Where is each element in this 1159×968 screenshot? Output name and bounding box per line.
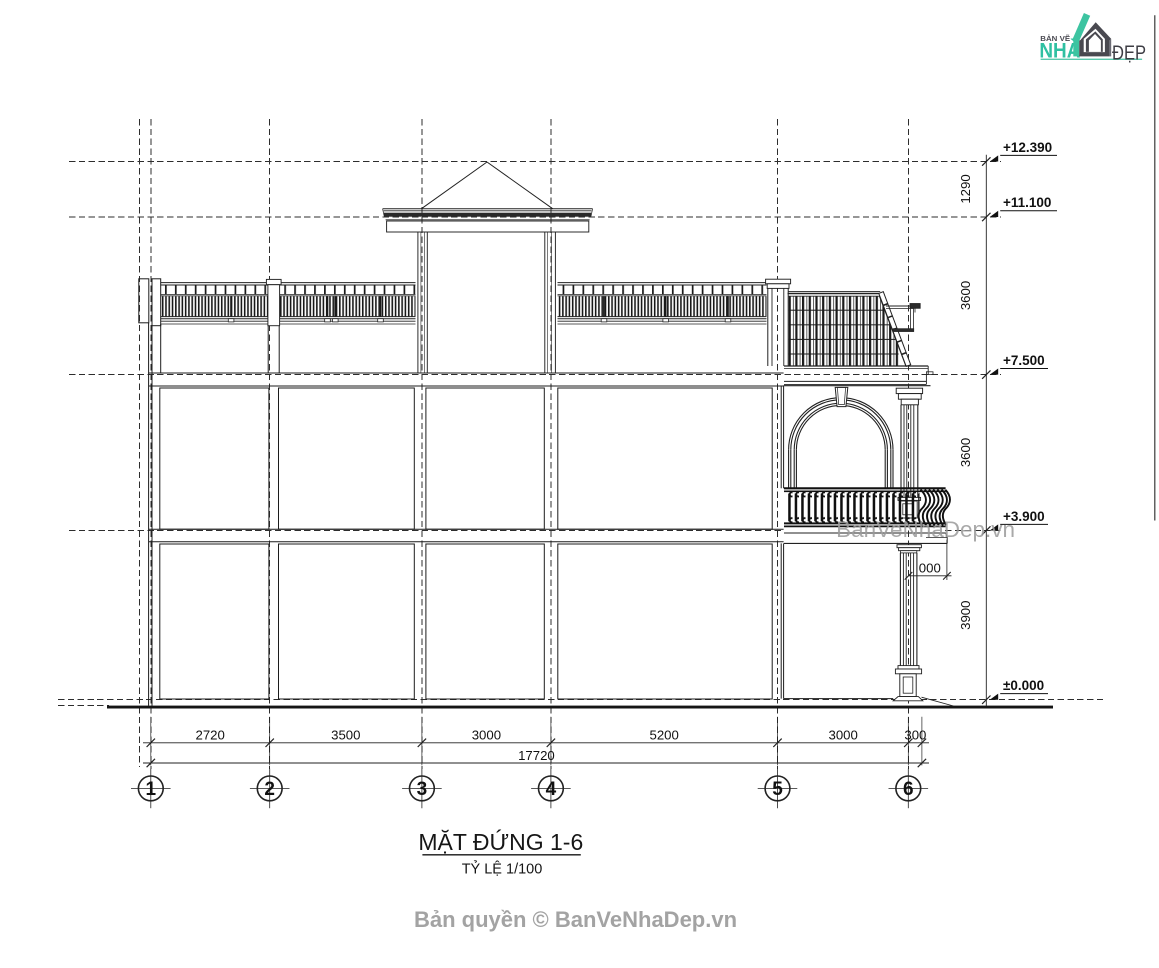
svg-text:Bản quyền © BanVeNhaDep.vn: Bản quyền © BanVeNhaDep.vn [414,907,737,932]
svg-text:+12.390: +12.390 [1003,140,1052,155]
svg-text:2720: 2720 [196,728,225,743]
svg-text:4: 4 [546,779,557,800]
svg-text:000: 000 [919,560,941,575]
svg-text:5200: 5200 [650,728,679,743]
svg-text:+11.100: +11.100 [1003,195,1051,210]
svg-text:2: 2 [264,779,275,800]
svg-text:+7.500: +7.500 [1003,353,1045,368]
svg-text:1290: 1290 [958,174,973,203]
svg-text:MẶT ĐỨNG 1-6: MẶT ĐỨNG 1-6 [418,829,583,855]
svg-text:3000: 3000 [829,728,858,743]
svg-text:3600: 3600 [958,438,973,467]
svg-text:ĐẸP: ĐẸP [1112,41,1146,64]
svg-text:5: 5 [772,779,783,800]
svg-text:±0.000: ±0.000 [1003,678,1044,693]
svg-text:3: 3 [417,779,428,800]
svg-text:3600: 3600 [958,281,973,310]
svg-text:300: 300 [904,728,926,743]
svg-text:3000: 3000 [472,728,501,743]
svg-text:3900: 3900 [958,601,973,630]
svg-text:17720: 17720 [518,748,555,763]
svg-text:6: 6 [903,779,914,800]
svg-text:3500: 3500 [331,728,360,743]
svg-text:1: 1 [146,779,157,800]
svg-text:BanVeNhaDep.vn: BanVeNhaDep.vn [836,517,1015,542]
svg-text:TỶ LỆ 1/100: TỶ LỆ 1/100 [462,861,543,878]
